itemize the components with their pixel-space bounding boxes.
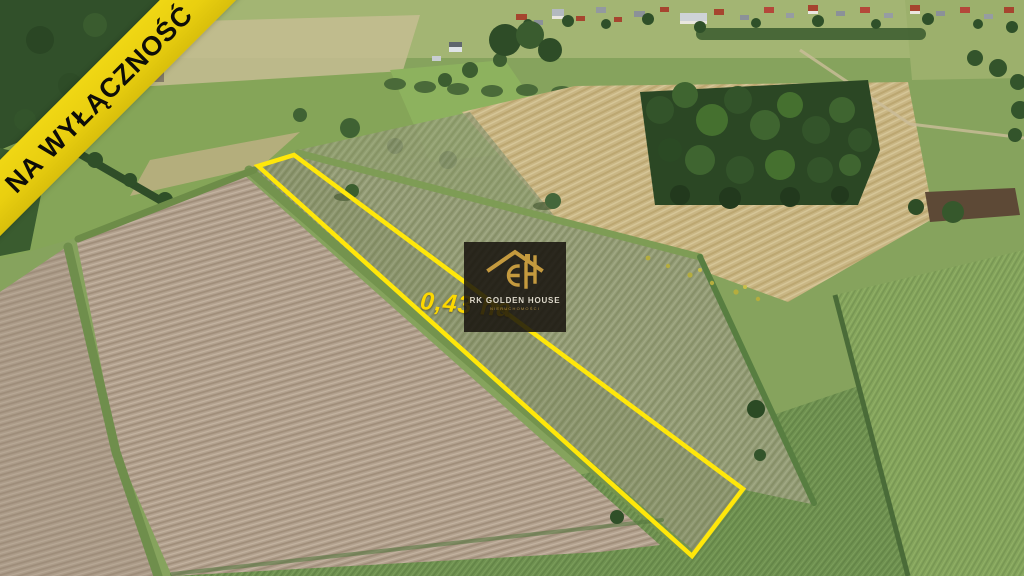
listing-photo: 0,43 ha RK GOLDEN HOUSE NIERUCHOMOŚCI NA… xyxy=(0,0,1024,576)
agency-subtitle: NIERUCHOMOŚCI xyxy=(490,306,540,311)
birch-grove xyxy=(640,80,880,209)
agency-name: RK GOLDEN HOUSE xyxy=(470,296,561,305)
gold-house-gh-monogram-icon xyxy=(484,248,546,294)
agency-watermark: RK GOLDEN HOUSE NIERUCHOMOŚCI xyxy=(464,242,566,332)
